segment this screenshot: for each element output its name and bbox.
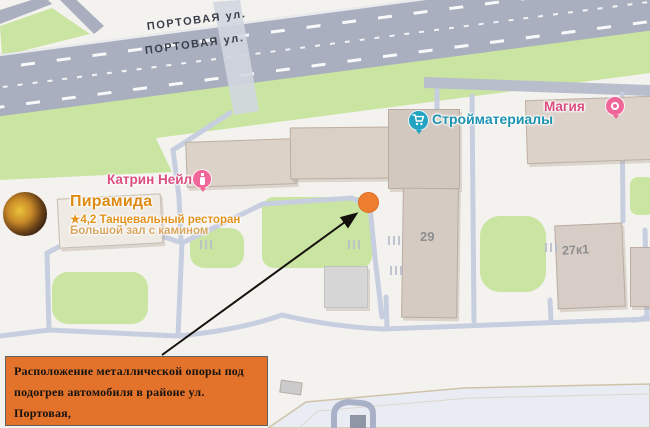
- small-structure: [350, 415, 366, 428]
- map-canvas[interactable]: 29 27к1 ПОРТОВАЯ ул. ПОРТОВАЯ ул. Катрин…: [0, 0, 650, 428]
- minor-road: [0, 0, 52, 24]
- minor-road: [54, 0, 104, 34]
- industrial-inner-line: [299, 394, 650, 428]
- parking-marks: [388, 236, 400, 245]
- poi-magia-label[interactable]: Магия: [544, 99, 585, 114]
- poi-piramida-label[interactable]: Пирамида: [70, 193, 152, 211]
- location-marker[interactable]: [358, 192, 379, 213]
- small-building: [279, 380, 303, 396]
- poi-stroymaterialy-label[interactable]: Стройматериалы: [432, 111, 553, 127]
- poi-piramida-rating-line: ★4,2 Танцевальный ресторан: [70, 212, 240, 226]
- annotation-box: Расположение металлической опоры под под…: [5, 356, 268, 426]
- building: [290, 127, 394, 180]
- parking-marks: [545, 243, 557, 252]
- piramida-photo-avatar[interactable]: [2, 191, 48, 237]
- green-area: [52, 272, 148, 324]
- parking-marks: [390, 266, 402, 275]
- green-area: [480, 216, 546, 292]
- service-loop-road: [334, 402, 373, 428]
- poi-katrin-neil-label[interactable]: Катрин Нейл: [107, 172, 192, 187]
- industrial-area: [268, 384, 650, 428]
- nail-polish-icon[interactable]: [192, 169, 212, 189]
- building-29: [401, 188, 459, 319]
- building-number-27k1: 27к1: [562, 242, 590, 257]
- building: [630, 247, 650, 307]
- building-number-29: 29: [420, 229, 434, 244]
- parking-marks: [200, 240, 212, 249]
- building-27k1: [554, 223, 626, 310]
- building: [324, 266, 368, 308]
- green-area: [630, 177, 650, 215]
- cosmetics-icon[interactable]: [605, 96, 625, 116]
- green-area: [262, 197, 372, 268]
- poi-piramida-note: Большой зал с камином: [70, 225, 208, 237]
- shopping-cart-icon[interactable]: [408, 110, 429, 131]
- parking-marks: [348, 240, 360, 249]
